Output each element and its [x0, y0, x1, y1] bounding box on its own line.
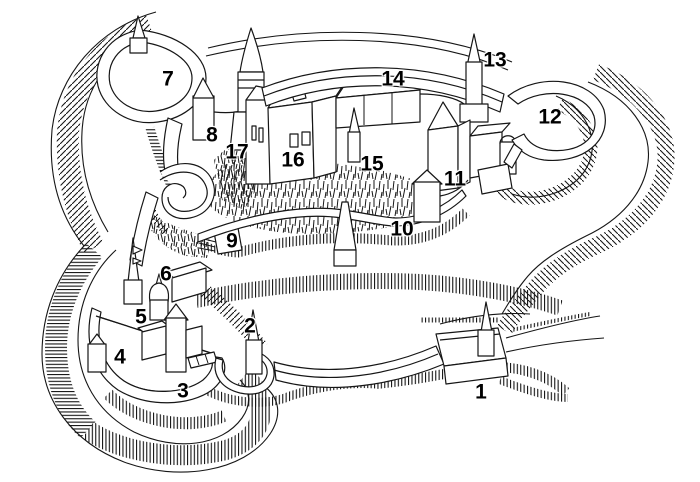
castle-drawing: [0, 0, 700, 482]
onion-tower-5: [149, 274, 168, 320]
castle-structures: [88, 16, 605, 403]
wall-loop-7: [97, 16, 206, 123]
castle-map: 1234567891011121314151617: [0, 0, 700, 482]
